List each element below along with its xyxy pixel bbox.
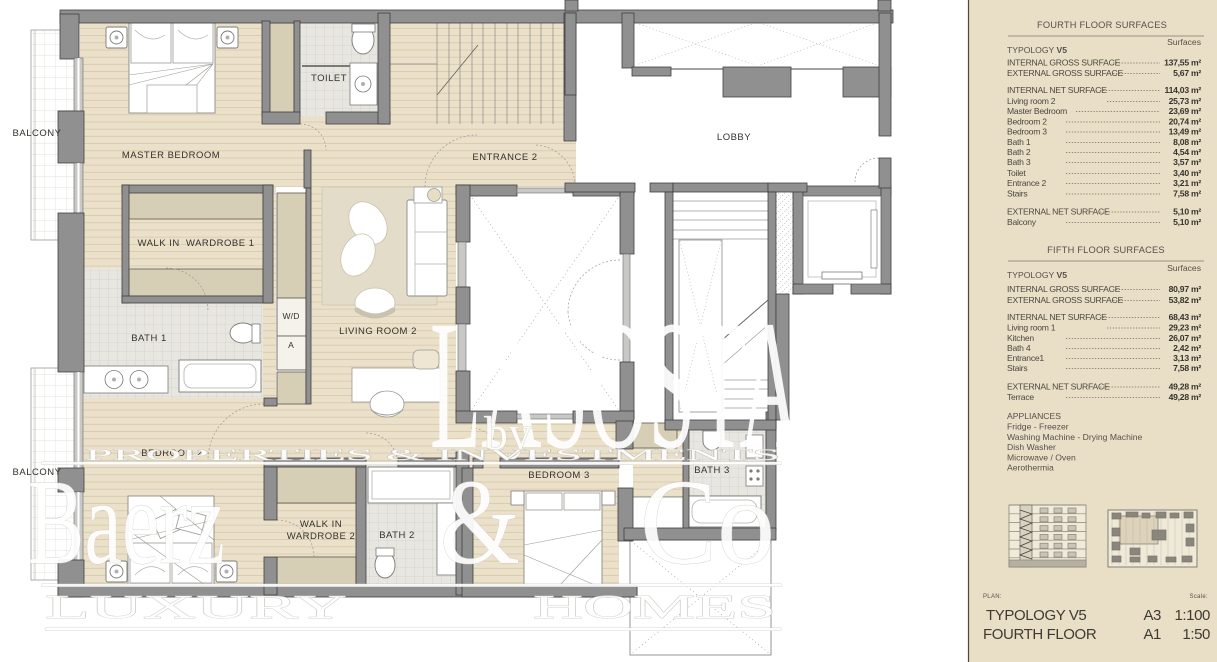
svg-text:A1: A1 bbox=[1143, 626, 1161, 643]
svg-text:FOURTH FLOOR: FOURTH FLOOR bbox=[983, 626, 1097, 643]
svg-text:Toilet: Toilet bbox=[1007, 168, 1026, 178]
svg-text:LIVING ROOM 2: LIVING ROOM 2 bbox=[339, 326, 417, 337]
svg-text:Living room 2: Living room 2 bbox=[1007, 96, 1056, 106]
svg-text:TYPOLOGY V5: TYPOLOGY V5 bbox=[1007, 270, 1067, 280]
svg-text:INTERNAL NET SURFACE: INTERNAL NET SURFACE bbox=[1007, 85, 1107, 95]
svg-text:3,57 m²: 3,57 m² bbox=[1173, 157, 1201, 167]
svg-text:26,07 m²: 26,07 m² bbox=[1169, 333, 1202, 343]
svg-text:13,49 m²: 13,49 m² bbox=[1169, 127, 1202, 137]
svg-text:Baerz: Baerz bbox=[28, 455, 225, 590]
svg-text:Microwave / Oven: Microwave / Oven bbox=[1007, 452, 1076, 462]
svg-text:EXTERNAL GROSS SURFACE: EXTERNAL GROSS SURFACE bbox=[1007, 295, 1123, 305]
svg-text:49,28 m²: 49,28 m² bbox=[1169, 382, 1202, 392]
svg-text:25,73 m²: 25,73 m² bbox=[1169, 96, 1202, 106]
svg-text:5,10 m²: 5,10 m² bbox=[1173, 207, 1201, 217]
svg-text:WALK IN WARDROBE 1: WALK IN WARDROBE 1 bbox=[137, 238, 254, 249]
svg-text:EXTERNAL NET SURFACE: EXTERNAL NET SURFACE bbox=[1007, 382, 1110, 392]
svg-text:TYPOLOGY V5: TYPOLOGY V5 bbox=[986, 607, 1086, 624]
svg-text:Aerothermia: Aerothermia bbox=[1007, 463, 1054, 473]
svg-text:68,43 m²: 68,43 m² bbox=[1169, 312, 1202, 322]
svg-text:FIFTH FLOOR SURFACES: FIFTH FLOOR SURFACES bbox=[1047, 245, 1165, 255]
svg-text:Balcony: Balcony bbox=[1007, 217, 1037, 227]
svg-text:Bath 4: Bath 4 bbox=[1007, 343, 1031, 353]
svg-text:1:50: 1:50 bbox=[1182, 626, 1210, 643]
svg-text:Bedroom 3: Bedroom 3 bbox=[1007, 127, 1047, 137]
svg-text:LOBBY: LOBBY bbox=[717, 132, 751, 143]
svg-text:7,58 m²: 7,58 m² bbox=[1173, 363, 1201, 373]
svg-text:3,21 m²: 3,21 m² bbox=[1173, 178, 1201, 188]
svg-text:1:100: 1:100 bbox=[1174, 607, 1210, 624]
svg-text:BATH 2: BATH 2 bbox=[379, 530, 415, 541]
svg-text:W/D: W/D bbox=[282, 311, 299, 321]
svg-text:PLAN:: PLAN: bbox=[983, 594, 1002, 600]
svg-text:Entrance 2: Entrance 2 bbox=[1007, 178, 1047, 188]
svg-text:Kitchen: Kitchen bbox=[1007, 333, 1034, 343]
svg-text:2,42 m²: 2,42 m² bbox=[1173, 343, 1201, 353]
svg-text:BATH 1: BATH 1 bbox=[131, 333, 167, 344]
svg-text:29,23 m²: 29,23 m² bbox=[1169, 323, 1202, 333]
svg-text:INTERNAL GROSS SURFACE: INTERNAL GROSS SURFACE bbox=[1007, 284, 1121, 294]
svg-text:INTERNAL NET SURFACE: INTERNAL NET SURFACE bbox=[1007, 312, 1107, 322]
svg-text:Terrace: Terrace bbox=[1007, 392, 1034, 402]
svg-text:Washing Machine - Drying Machi: Washing Machine - Drying Machine bbox=[1007, 432, 1143, 442]
svg-text:Bath 3: Bath 3 bbox=[1007, 157, 1031, 167]
svg-text:EXTERNAL GROSS SURFACE: EXTERNAL GROSS SURFACE bbox=[1007, 68, 1123, 78]
svg-text:5,10 m²: 5,10 m² bbox=[1173, 217, 1201, 227]
svg-text:EXTERNAL NET SURFACE: EXTERNAL NET SURFACE bbox=[1007, 207, 1110, 217]
svg-text:Entrance1: Entrance1 bbox=[1007, 353, 1044, 363]
svg-text:Bath 1: Bath 1 bbox=[1007, 137, 1031, 147]
svg-text:23,69 m²: 23,69 m² bbox=[1169, 106, 1202, 116]
svg-text:8,08 m²: 8,08 m² bbox=[1173, 137, 1201, 147]
svg-text:APPLIANCES: APPLIANCES bbox=[1007, 411, 1061, 421]
svg-text:Bedroom 2: Bedroom 2 bbox=[1007, 117, 1047, 127]
svg-text:Co: Co bbox=[640, 455, 775, 590]
svg-text:114,03 m²: 114,03 m² bbox=[1165, 85, 1202, 95]
svg-text:5,67 m²: 5,67 m² bbox=[1173, 68, 1201, 78]
svg-text:Surfaces: Surfaces bbox=[1167, 263, 1201, 273]
svg-text:Surfaces: Surfaces bbox=[1167, 37, 1201, 47]
svg-text:Master Bedroom: Master Bedroom bbox=[1007, 106, 1067, 116]
svg-text:137,55 m²: 137,55 m² bbox=[1164, 58, 1201, 68]
svg-text:53,82 m²: 53,82 m² bbox=[1169, 295, 1202, 305]
svg-text:Living room 1: Living room 1 bbox=[1007, 323, 1056, 333]
svg-text:Bath 2: Bath 2 bbox=[1007, 147, 1031, 157]
svg-text:TYPOLOGY V5: TYPOLOGY V5 bbox=[1007, 45, 1067, 55]
svg-text:49,28 m²: 49,28 m² bbox=[1169, 392, 1202, 402]
svg-text:WALK IN: WALK IN bbox=[300, 519, 342, 530]
svg-text:3,13 m²: 3,13 m² bbox=[1173, 353, 1201, 363]
svg-text:HOMES: HOMES bbox=[533, 589, 776, 626]
svg-text:3,40 m²: 3,40 m² bbox=[1173, 168, 1201, 178]
svg-text:Stairs: Stairs bbox=[1007, 189, 1027, 199]
svg-text:BALCONY: BALCONY bbox=[13, 128, 62, 139]
svg-text:7,58 m²: 7,58 m² bbox=[1173, 189, 1201, 199]
svg-text:80,97 m²: 80,97 m² bbox=[1169, 284, 1202, 294]
svg-text:MASTER BEDROOM: MASTER BEDROOM bbox=[122, 150, 220, 161]
svg-text:INTERNAL GROSS SURFACE: INTERNAL GROSS SURFACE bbox=[1007, 58, 1121, 68]
svg-text:Fridge - Freezer: Fridge - Freezer bbox=[1007, 422, 1069, 432]
svg-text:LUXURY: LUXURY bbox=[45, 589, 347, 626]
svg-text:&: & bbox=[440, 455, 520, 590]
svg-text:TOILET: TOILET bbox=[311, 73, 347, 84]
svg-text:A3: A3 bbox=[1143, 607, 1161, 624]
svg-text:WARDROBE 2: WARDROBE 2 bbox=[287, 531, 356, 542]
svg-text:ENTRANCE 2: ENTRANCE 2 bbox=[472, 152, 537, 163]
svg-text:Dish Washer: Dish Washer bbox=[1007, 442, 1056, 452]
svg-text:4,54 m²: 4,54 m² bbox=[1173, 147, 1201, 157]
svg-text:20,74 m²: 20,74 m² bbox=[1169, 117, 1202, 127]
svg-text:Stairs: Stairs bbox=[1007, 363, 1027, 373]
svg-text:A: A bbox=[288, 340, 294, 350]
svg-text:Scale:: Scale: bbox=[1190, 594, 1209, 600]
svg-text:FOURTH FLOOR SURFACES: FOURTH FLOOR SURFACES bbox=[1037, 20, 1167, 30]
